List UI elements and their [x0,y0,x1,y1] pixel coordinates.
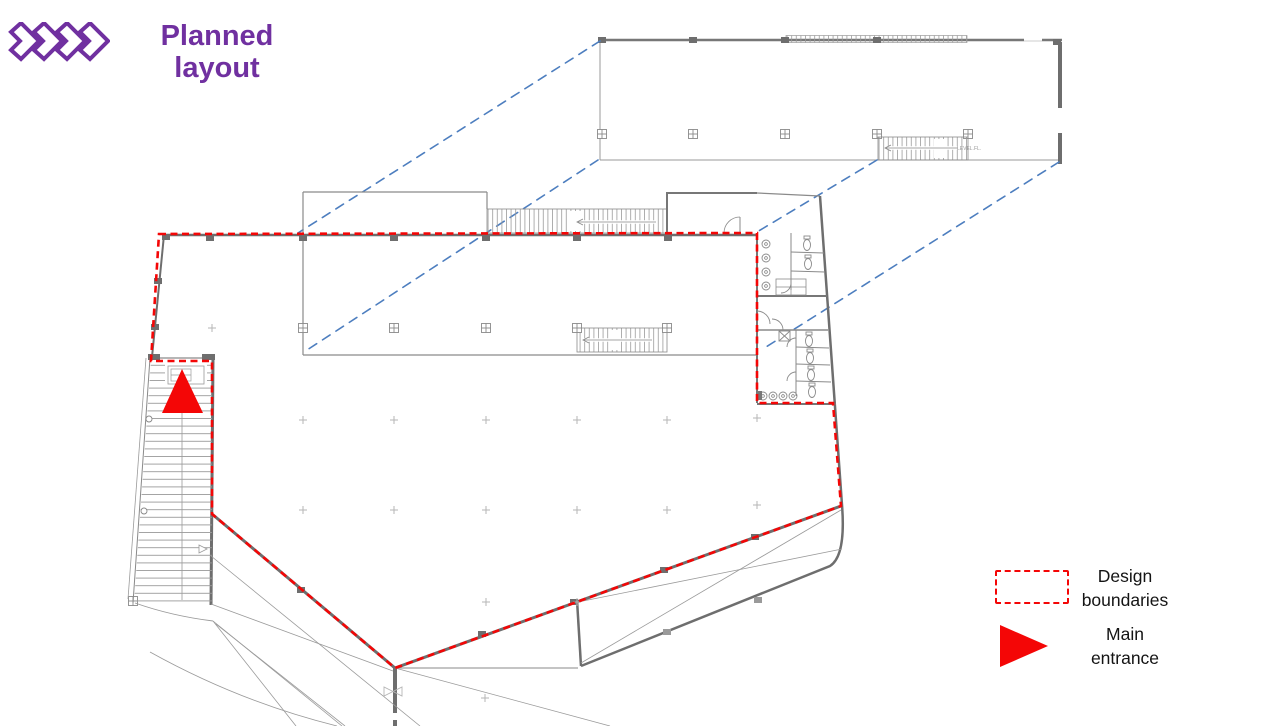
projection-lines [298,41,1059,350]
page-title-line2: layout [117,52,317,84]
wall-pilasters [151,234,759,637]
sink-row-lower [759,392,797,400]
projection-line-1 [298,41,600,233]
grid-marks [208,324,761,702]
main-staircase [487,209,667,233]
page-title: Planned layout [117,20,317,85]
upper-level-plan: LEVEL.FL. [598,35,1063,164]
main-entrance-label: Main entrance [1065,623,1185,670]
door-opening [1024,35,1042,45]
logo-chevron-icon [8,22,110,62]
site-lines [135,510,842,726]
door-swing [772,319,783,330]
projection-line-2 [307,160,598,350]
outer-walls [151,196,843,726]
stair-level-label: LEVEL.FL. [957,146,981,152]
main-entrance-swatch [1000,625,1048,667]
projection-line-4 [766,162,1059,347]
door-swing [787,372,796,381]
inner-staircase [577,328,667,352]
floorplan-canvas: LEVEL.FL. [0,0,1262,726]
sink-row-upper [762,240,770,290]
door-swing [781,283,791,293]
design-boundaries-swatch [995,570,1069,604]
ground-floor-plan [128,192,843,726]
entrance-staircase [128,354,215,605]
design-boundaries-label: Design boundaries [1065,565,1185,612]
door-swing [757,311,770,324]
upper-staircase: LEVEL.FL. [878,137,981,160]
door-swing [724,217,740,233]
mezzanine-footprint [129,192,821,606]
page-title-line1: Planned [117,20,317,52]
